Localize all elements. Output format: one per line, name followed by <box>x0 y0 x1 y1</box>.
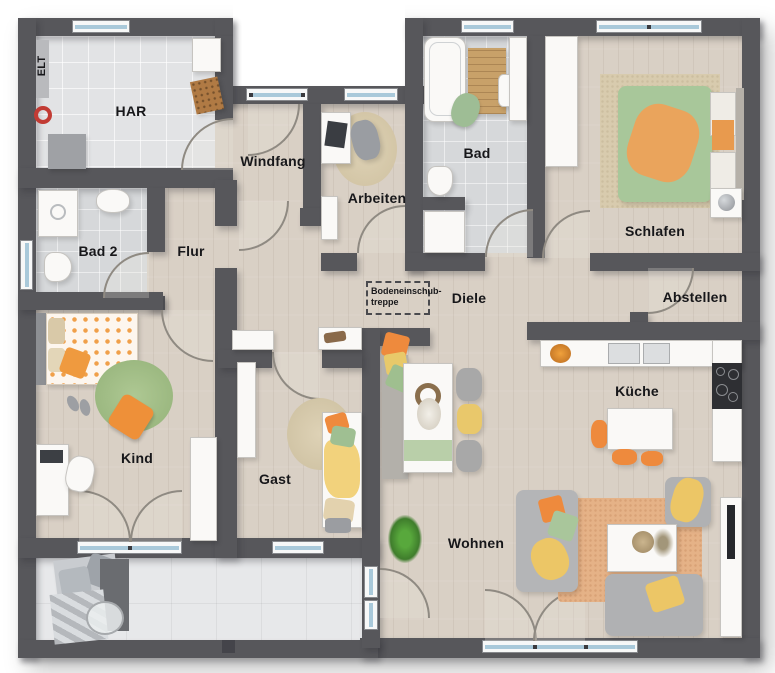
wall-outer-top-right <box>405 18 760 36</box>
coffee-table-plant <box>652 528 674 558</box>
label-wohnen: Wohnen <box>448 535 504 551</box>
shower-bad <box>424 211 465 253</box>
cabinet-bad <box>509 37 527 121</box>
daybed-pillow-gray <box>325 518 351 533</box>
washing-machine <box>192 38 221 72</box>
door-hinge <box>301 93 305 97</box>
wall-gast-north-b <box>322 350 362 368</box>
dining-chair-3 <box>456 440 482 472</box>
french-door-wohnen <box>482 640 638 653</box>
wall-mid-vertical <box>215 268 237 558</box>
wall-windfang-south <box>300 208 321 226</box>
terrace-door-window-2 <box>364 600 378 630</box>
window-glass <box>464 25 511 29</box>
headboard-schlafen <box>736 88 744 200</box>
window-bad2-left <box>20 240 33 290</box>
label-elt: ELT <box>36 56 48 77</box>
fern-plant <box>388 515 422 563</box>
shower-drain-bad2 <box>50 204 66 220</box>
cooktop-burner <box>716 367 725 376</box>
window-glass <box>275 546 321 550</box>
cooktop-burner <box>728 392 738 402</box>
label-windfang: Windfang <box>240 153 305 169</box>
window-arbeiten-top <box>344 88 398 101</box>
table-runner <box>404 440 452 461</box>
label-flur: Flur <box>177 243 204 259</box>
wardrobe-schlafen <box>545 36 578 167</box>
cooktop-burner <box>728 369 739 380</box>
entrance-recess-outside <box>233 0 405 86</box>
cabinet-gast-north <box>232 330 274 350</box>
lamp-schlafen <box>718 194 735 211</box>
window-mullion <box>128 546 132 550</box>
window-bad-top <box>461 20 514 33</box>
wall-arbeiten-south <box>321 253 357 271</box>
label-kueche: Küche <box>615 383 659 399</box>
heater-unit <box>48 134 86 169</box>
wall-bad-south <box>405 253 485 271</box>
attic-ladder-label-1: Bodeneinschub- <box>371 286 426 297</box>
table-flowers <box>417 398 441 430</box>
window-mullion <box>647 25 651 29</box>
bed-pillow-orange <box>712 120 734 150</box>
window-glass <box>369 603 373 627</box>
attic-ladder-label-2: treppe <box>371 297 426 308</box>
window-glass <box>369 569 373 595</box>
label-har: HAR <box>116 103 147 119</box>
window-mullion <box>584 645 588 649</box>
window-glass <box>75 25 127 29</box>
label-arbeiten: Arbeiten <box>348 190 406 206</box>
kitchen-chair-left <box>591 420 608 448</box>
wall-bad-partition <box>423 197 465 210</box>
bed-kind-pillow <box>48 318 65 344</box>
wall-bad-west <box>405 18 423 271</box>
kitchen-chair-bottom-2 <box>641 451 663 466</box>
window-gast-south <box>272 541 324 554</box>
toilet-bad2 <box>44 252 72 282</box>
terrace-post <box>222 640 235 653</box>
sink-bad2 <box>96 189 130 213</box>
kitchen-sink-1 <box>608 343 640 364</box>
floor-plan: Bodeneinschub- treppe <box>0 0 775 673</box>
label-abstellen: Abstellen <box>663 289 728 305</box>
entry-door-bar <box>246 88 308 101</box>
wall-windfang-stub <box>215 180 237 226</box>
window-glass <box>25 243 29 287</box>
label-gast: Gast <box>259 471 291 487</box>
shelf-arbeiten <box>321 196 338 240</box>
kitchen-table <box>607 408 673 450</box>
headboard-kind <box>36 313 46 385</box>
kitchen-sink-2 <box>643 343 670 364</box>
label-bad: Bad <box>463 145 490 161</box>
door-hinge <box>249 93 253 97</box>
terrace-table <box>86 601 124 635</box>
cooktop-burner <box>716 384 728 396</box>
wardrobe-gast <box>237 362 256 458</box>
window-har-top <box>72 20 130 33</box>
label-bad2: Bad 2 <box>78 243 117 259</box>
terrace-door-window-1 <box>364 566 378 598</box>
daybed-blanket-yellow <box>324 440 360 498</box>
hose-reel <box>34 106 52 124</box>
window-glass <box>347 93 395 97</box>
laptop-kind <box>40 450 63 463</box>
wall-bad2-east-upper <box>147 188 165 252</box>
attic-ladder-box: Bodeneinschub- treppe <box>366 281 430 315</box>
wall-south-left <box>18 538 378 558</box>
window-glass <box>485 645 635 649</box>
coffee-table-tray <box>632 531 654 553</box>
door-glass <box>249 93 305 97</box>
window-mullion <box>533 645 537 649</box>
window-schlafen-top <box>596 20 702 33</box>
toilet-bad <box>427 166 453 196</box>
french-door-kind <box>77 541 182 554</box>
laptop <box>324 121 347 149</box>
label-kind: Kind <box>121 450 153 466</box>
wall-windfang-arbeiten <box>303 104 321 216</box>
daybed-pillow-green <box>330 425 357 448</box>
dining-chair-1 <box>456 368 482 401</box>
kitchen-chair-bottom-1 <box>612 449 637 465</box>
dining-chair-2 <box>457 404 482 434</box>
tv-screen <box>727 505 735 559</box>
wall-kueche-north <box>527 322 760 340</box>
fruit-bowl <box>550 344 571 363</box>
label-schlafen: Schlafen <box>625 223 685 239</box>
wall-har-bottom <box>18 168 233 188</box>
wardrobe-kind <box>190 437 217 541</box>
label-diele: Diele <box>452 290 486 306</box>
